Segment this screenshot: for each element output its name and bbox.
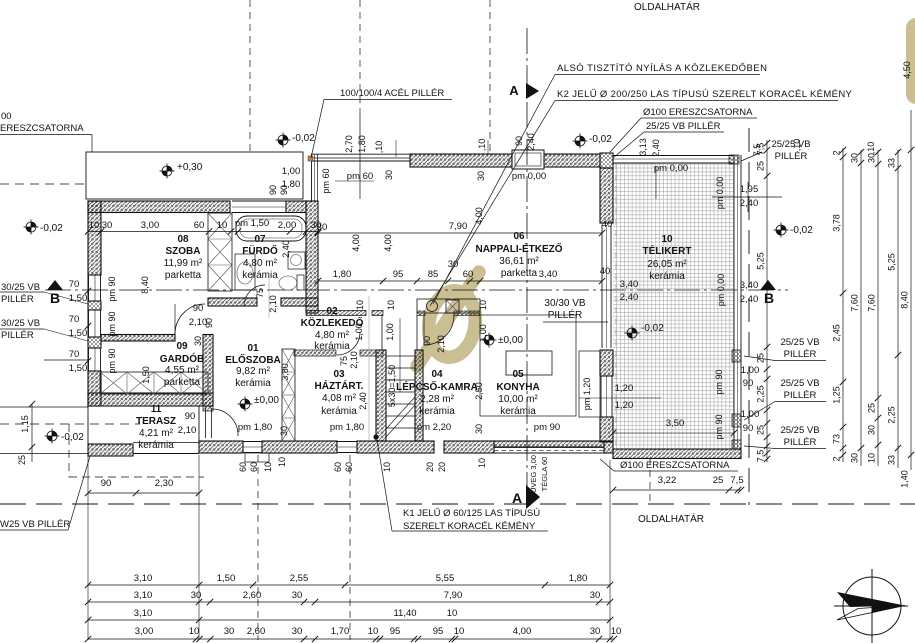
svg-text:kerámia: kerámia: [314, 341, 350, 352]
svg-text:2,40: 2,40: [740, 294, 759, 305]
svg-text:pm 60: pm 60: [321, 168, 331, 193]
svg-text:7,90: 7,90: [444, 590, 463, 601]
svg-text:70: 70: [69, 349, 80, 360]
svg-text:10: 10: [867, 453, 877, 463]
svg-text:30: 30: [867, 153, 877, 163]
svg-text:10: 10: [189, 626, 200, 637]
svg-text:90: 90: [743, 378, 754, 389]
svg-text:2,70: 2,70: [344, 135, 354, 153]
svg-text:10: 10: [355, 300, 365, 310]
svg-text:FÜRDŐ: FÜRDŐ: [242, 244, 278, 257]
svg-text:1,00: 1,00: [385, 323, 395, 341]
svg-text:1,95: 1,95: [740, 184, 759, 195]
svg-text:,10: ,10: [477, 139, 487, 152]
svg-text:100/100/4 ACÉL PILLÉR: 100/100/4 ACÉL PILLÉR: [340, 88, 444, 99]
svg-text:pm 90: pm 90: [714, 369, 724, 394]
svg-text:kerámia: kerámia: [419, 406, 455, 417]
svg-text:pm 90: pm 90: [107, 348, 117, 373]
svg-text:2,45: 2,45: [832, 324, 842, 342]
svg-text:1,80: 1,80: [357, 135, 367, 153]
svg-text:30: 30: [292, 590, 303, 601]
svg-text:75: 75: [339, 356, 349, 366]
svg-text:parketta: parketta: [165, 270, 202, 281]
svg-text:1,40: 1,40: [900, 470, 910, 488]
svg-text:10: 10: [277, 457, 287, 467]
svg-text:8,40: 8,40: [900, 291, 910, 309]
svg-text:PILLÉR: PILLÉR: [775, 151, 808, 162]
svg-text:90: 90: [101, 478, 112, 489]
svg-text:70: 70: [69, 279, 80, 290]
svg-text:3,40: 3,40: [740, 280, 759, 291]
svg-text:30: 30: [850, 453, 860, 463]
svg-text:25/25 VB PILLÉR: 25/25 VB PILLÉR: [646, 121, 721, 132]
svg-text:A: A: [509, 83, 519, 98]
svg-text:05: 05: [512, 369, 524, 380]
svg-text:PILLÉR: PILLÉR: [784, 390, 817, 401]
svg-text:4,00: 4,00: [383, 234, 393, 252]
svg-text:10: 10: [454, 626, 465, 637]
svg-text:30: 30: [279, 426, 289, 436]
svg-text:ELŐSZOBA: ELŐSZOBA: [225, 353, 281, 366]
svg-text:+0,30: +0,30: [177, 162, 203, 173]
svg-text:2: 2: [832, 456, 842, 461]
svg-text:OLDALHATÁR: OLDALHATÁR: [634, 0, 700, 13]
svg-text:30: 30: [384, 170, 394, 180]
svg-text:1,70: 1,70: [331, 626, 350, 637]
svg-text:pm 1,80: pm 1,80: [330, 422, 364, 433]
svg-text:01: 01: [247, 343, 259, 354]
svg-text:SZOBA: SZOBA: [166, 246, 201, 257]
svg-text:2,25: 2,25: [756, 385, 766, 403]
svg-text:3,00: 3,00: [135, 626, 154, 637]
svg-text:30: 30: [850, 153, 860, 163]
svg-text:1,00: 1,00: [741, 409, 760, 420]
svg-text:pm 90: pm 90: [534, 422, 560, 433]
svg-text:10: 10: [478, 300, 488, 310]
svg-text:5,25: 5,25: [887, 253, 897, 271]
svg-text:4,80 m²: 4,80 m²: [243, 258, 278, 269]
svg-text:OLDALHATÁR: OLDALHATÁR: [638, 512, 704, 525]
svg-text:30: 30: [292, 626, 303, 637]
svg-text:pm 0,00: pm 0,00: [512, 171, 546, 182]
svg-text:ERESZCSATORNA: ERESZCSATORNA: [0, 123, 84, 134]
svg-text:10: 10: [368, 626, 379, 637]
svg-text:3,00: 3,00: [141, 220, 160, 231]
svg-text:W25 VB PILLÉR: W25 VB PILLÉR: [0, 519, 70, 530]
svg-text:-0,02: -0,02: [641, 323, 664, 334]
svg-text:95: 95: [433, 626, 444, 637]
svg-text:A: A: [512, 490, 522, 506]
svg-text:30: 30: [317, 222, 328, 233]
svg-text:parketta: parketta: [164, 377, 201, 388]
svg-text:kerámia: kerámia: [138, 440, 174, 451]
svg-text:-0,02: -0,02: [292, 133, 315, 144]
svg-text:25: 25: [756, 353, 766, 363]
svg-text:30: 30: [590, 590, 601, 601]
svg-text:33: 33: [887, 455, 897, 465]
svg-text:GARDÓB: GARDÓB: [160, 352, 204, 365]
svg-text:1,00: 1,00: [478, 324, 488, 342]
svg-text:5,25: 5,25: [756, 252, 766, 270]
svg-text:kerámia: kerámia: [321, 406, 357, 417]
svg-text:60: 60: [333, 462, 343, 472]
svg-text:10,00 m²: 10,00 m²: [498, 394, 538, 405]
svg-text:10: 10: [447, 608, 458, 619]
svg-text:25: 25: [867, 403, 877, 413]
svg-text:25: 25: [713, 475, 724, 486]
svg-text:3,13: 3,13: [638, 138, 648, 156]
svg-text:1,25: 1,25: [832, 386, 842, 404]
svg-text:20: 20: [437, 462, 447, 472]
svg-text:90: 90: [185, 411, 196, 422]
svg-text:10: 10: [217, 220, 228, 231]
svg-text:pm 60: pm 60: [347, 171, 373, 182]
svg-text:2,40: 2,40: [281, 240, 291, 258]
svg-text:TERASZ: TERASZ: [136, 416, 176, 427]
svg-text:30: 30: [867, 425, 877, 435]
svg-text:10: 10: [477, 458, 487, 468]
svg-text:2,40: 2,40: [358, 392, 368, 410]
svg-text:LÉPCSŐ-KAMRA: LÉPCSŐ-KAMRA: [396, 380, 478, 393]
svg-text:1,00: 1,00: [741, 365, 760, 376]
svg-text:9,82 m²: 9,82 m²: [236, 366, 271, 377]
svg-text:4,00: 4,00: [474, 207, 484, 225]
svg-text:03: 03: [333, 369, 345, 380]
svg-text:26,05 m²: 26,05 m²: [647, 259, 687, 270]
svg-text:PILLÉR: PILLÉR: [1, 330, 34, 341]
svg-text:30/25 VB: 30/25 VB: [1, 282, 40, 293]
svg-text:2,40: 2,40: [526, 133, 536, 151]
svg-text:kerámia: kerámia: [649, 271, 685, 282]
svg-text:K2 JELŰ Ø 200/250 LAS TÍPUSÚ S: K2 JELŰ Ø 200/250 LAS TÍPUSÚ SZERELT KOR…: [557, 89, 853, 100]
svg-text:SZERELT KORACÉL KÉMÉNY: SZERELT KORACÉL KÉMÉNY: [403, 521, 536, 532]
svg-text:36,61 m²: 36,61 m²: [499, 256, 539, 267]
svg-text:3,10: 3,10: [134, 608, 153, 619]
svg-text:1,80: 1,80: [333, 269, 352, 280]
svg-text:PILLÉR: PILLÉR: [548, 308, 582, 321]
svg-text:1,80: 1,80: [569, 573, 588, 584]
svg-text:1,15: 1,15: [20, 415, 30, 433]
svg-text:08: 08: [177, 234, 189, 245]
svg-text:25: 25: [17, 455, 27, 465]
svg-text:25/25 VB: 25/25 VB: [780, 425, 819, 436]
svg-text:90: 90: [743, 423, 754, 434]
svg-text:25/25 VB: 25/25 VB: [780, 337, 819, 348]
svg-text:2,40: 2,40: [651, 139, 661, 157]
svg-text:3,50: 3,50: [666, 418, 685, 429]
svg-text:5,55: 5,55: [436, 573, 455, 584]
svg-text:NAPPALI-ÉTKEZŐ: NAPPALI-ÉTKEZŐ: [475, 242, 562, 255]
svg-text:pm 0,00: pm 0,00: [716, 274, 726, 307]
svg-text:07: 07: [254, 234, 266, 245]
svg-text:3,40: 3,40: [539, 269, 558, 280]
svg-text:30: 30: [474, 424, 484, 434]
svg-text:09: 09: [176, 341, 188, 352]
svg-text:2,10: 2,10: [178, 425, 197, 436]
svg-text:pm 1,80: pm 1,80: [238, 422, 272, 433]
svg-text:Ø100 ERESZCSATORNA: Ø100 ERESZCSATORNA: [643, 107, 753, 118]
svg-text:60: 60: [344, 462, 354, 472]
svg-text:7,5: 7,5: [730, 475, 743, 486]
svg-text:1,50: 1,50: [69, 293, 88, 304]
svg-text:2,55: 2,55: [290, 573, 309, 584]
svg-text:90: 90: [268, 185, 278, 195]
svg-text:1,20: 1,20: [615, 383, 634, 394]
svg-text:1,50: 1,50: [217, 573, 236, 584]
svg-text:4,21 m²: 4,21 m²: [139, 428, 174, 439]
svg-text:3,78: 3,78: [832, 214, 842, 232]
svg-text:ÜVEG 3,00: ÜVEG 3,00: [529, 455, 538, 493]
svg-text:,10: ,10: [792, 139, 802, 152]
svg-text:4,08 m²: 4,08 m²: [322, 393, 357, 404]
svg-text:3,22: 3,22: [658, 475, 677, 486]
svg-text:95: 95: [390, 626, 401, 637]
svg-text:30: 30: [590, 626, 601, 637]
svg-text:7,5: 7,5: [756, 143, 766, 156]
svg-text:1,50: 1,50: [69, 328, 88, 339]
svg-text:2,10: 2,10: [189, 317, 208, 328]
svg-text:4,00: 4,00: [513, 626, 532, 637]
svg-text:7,60: 7,60: [867, 294, 877, 312]
svg-text:30/30 VB: 30/30 VB: [544, 298, 585, 309]
svg-text:5x30=1,50: 5x30=1,50: [387, 365, 397, 407]
svg-text:75: 75: [255, 288, 265, 298]
svg-text:ALSÓ TISZTÍTÓ NYÍLÁS A KÖZLEKE: ALSÓ TISZTÍTÓ NYÍLÁS A KÖZLEKEDŐBEN: [557, 63, 767, 74]
svg-text:4,00: 4,00: [351, 234, 361, 252]
svg-text:30: 30: [191, 590, 202, 601]
svg-text:60: 60: [238, 462, 248, 472]
svg-text:90: 90: [422, 336, 432, 346]
svg-text:30: 30: [476, 171, 486, 181]
svg-text:73: 73: [832, 434, 842, 444]
svg-text:B: B: [50, 290, 60, 306]
svg-text:pm 90: pm 90: [107, 276, 117, 301]
svg-text:1,20: 1,20: [615, 400, 634, 411]
svg-text:HÁZTÁRT.: HÁZTÁRT.: [315, 379, 364, 392]
svg-text:90: 90: [514, 136, 524, 146]
svg-text:2,25: 2,25: [887, 406, 897, 424]
svg-text:PILLÉR: PILLÉR: [784, 437, 817, 448]
svg-text:30/25 VB: 30/25 VB: [1, 318, 40, 329]
svg-text:25: 25: [756, 425, 766, 435]
svg-text:95: 95: [393, 269, 404, 280]
svg-text:04: 04: [431, 369, 443, 380]
svg-text:60: 60: [249, 462, 259, 472]
svg-text:parketta: parketta: [501, 268, 538, 279]
svg-text:30: 30: [448, 259, 459, 270]
svg-text:B: B: [764, 290, 774, 306]
svg-text:2,30: 2,30: [155, 478, 174, 489]
svg-text:25/25 VB: 25/25 VB: [780, 378, 819, 389]
svg-text:10: 10: [263, 462, 273, 472]
svg-text:pm 1,50: pm 1,50: [235, 218, 269, 229]
svg-text:pm 2,20: pm 2,20: [417, 422, 451, 433]
svg-text:10: 10: [89, 220, 100, 231]
svg-text:1,50: 1,50: [141, 366, 151, 384]
svg-text:TÉLIKERT: TÉLIKERT: [643, 244, 692, 257]
svg-text:2,00: 2,00: [278, 220, 297, 231]
svg-text:±0,00: ±0,00: [498, 335, 523, 346]
svg-text:90: 90: [193, 303, 204, 314]
svg-text:2: 2: [832, 150, 842, 155]
svg-text:3,10: 3,10: [134, 573, 153, 584]
svg-text:40: 40: [602, 219, 613, 230]
svg-text:2,28 m²: 2,28 m²: [420, 394, 455, 405]
svg-text:PILLÉR: PILLÉR: [784, 349, 817, 360]
svg-text:25/25 VB: 25/25 VB: [771, 139, 810, 150]
svg-text:10: 10: [611, 626, 622, 637]
svg-text:20: 20: [425, 462, 435, 472]
svg-text:Ø100 ERESZCSATORNA: Ø100 ERESZCSATORNA: [620, 460, 730, 471]
svg-text:7,5: 7,5: [756, 450, 766, 463]
svg-text:1,00: 1,00: [282, 166, 301, 177]
svg-text:10: 10: [382, 462, 392, 472]
svg-text:4,80 m²: 4,80 m²: [315, 330, 350, 341]
svg-text:K1 JELŰ Ø 60/125 LAS TÍPUSÚ: K1 JELŰ Ø 60/125 LAS TÍPUSÚ: [403, 508, 540, 519]
svg-text:3,40: 3,40: [620, 279, 639, 290]
svg-text:30: 30: [102, 220, 113, 231]
svg-text:,10: ,10: [374, 141, 384, 154]
svg-text:40: 40: [600, 266, 611, 277]
svg-text:70: 70: [69, 314, 80, 325]
svg-text:-0,02: -0,02: [61, 432, 84, 443]
svg-text:1,80: 1,80: [282, 179, 301, 190]
svg-text:kerámia: kerámia: [242, 270, 278, 281]
svg-text:pm 1,20: pm 1,20: [582, 378, 592, 411]
svg-text:60: 60: [463, 269, 474, 280]
svg-text:kerámia: kerámia: [235, 378, 271, 389]
svg-text:10: 10: [661, 234, 673, 245]
svg-text:kerámia: kerámia: [500, 406, 536, 417]
svg-text:11: 11: [151, 404, 162, 415]
svg-text:2,40: 2,40: [740, 198, 759, 209]
svg-text:7,60: 7,60: [850, 294, 860, 312]
svg-text:-0,02: -0,02: [790, 225, 813, 236]
svg-text:1,00: 1,00: [354, 323, 364, 341]
svg-text:2,60: 2,60: [243, 590, 262, 601]
svg-text:2,60: 2,60: [247, 626, 266, 637]
svg-text:7,90: 7,90: [449, 221, 468, 232]
svg-text:TÉGLA 60: TÉGLA 60: [540, 457, 549, 492]
svg-text:-0,02: -0,02: [40, 223, 63, 234]
svg-text:-0,02: -0,02: [589, 134, 612, 145]
svg-text:02: 02: [326, 306, 338, 317]
svg-text:60: 60: [194, 220, 205, 231]
svg-text:30: 30: [193, 336, 203, 346]
svg-text:2,10: 2,10: [268, 295, 278, 313]
svg-text:4,55 m²: 4,55 m²: [165, 365, 200, 376]
svg-text:2,40: 2,40: [620, 292, 639, 303]
svg-text:30: 30: [224, 626, 235, 637]
svg-text:25: 25: [756, 161, 766, 171]
svg-text:pm 0,00: pm 0,00: [654, 163, 688, 174]
svg-text:PILLÉR: PILLÉR: [1, 294, 34, 305]
svg-text:±0,00: ±0,00: [254, 395, 279, 406]
svg-text:3,80: 3,80: [280, 363, 290, 381]
svg-text:pm 90: pm 90: [107, 311, 117, 336]
svg-text:11,99 m²: 11,99 m²: [164, 258, 203, 269]
svg-text:2,50: 2,50: [474, 382, 484, 400]
svg-text:pm 0,00: pm 0,00: [715, 177, 725, 210]
svg-text:2,10: 2,10: [436, 335, 446, 353]
svg-text:pm 90: pm 90: [714, 414, 724, 439]
svg-text:10: 10: [386, 300, 396, 310]
svg-text:8,40: 8,40: [140, 276, 150, 294]
svg-text:,10: ,10: [866, 142, 876, 155]
svg-text:4,50: 4,50: [902, 61, 912, 79]
svg-text:33: 33: [887, 158, 897, 168]
svg-text:1,50: 1,50: [69, 363, 88, 374]
svg-text:KONYHA: KONYHA: [496, 382, 539, 393]
svg-text:00: 00: [1, 111, 12, 122]
svg-text:85: 85: [428, 269, 439, 280]
svg-text:3,10: 3,10: [134, 590, 153, 601]
svg-text:2,10: 2,10: [349, 351, 359, 369]
svg-text:11,40: 11,40: [393, 608, 416, 619]
